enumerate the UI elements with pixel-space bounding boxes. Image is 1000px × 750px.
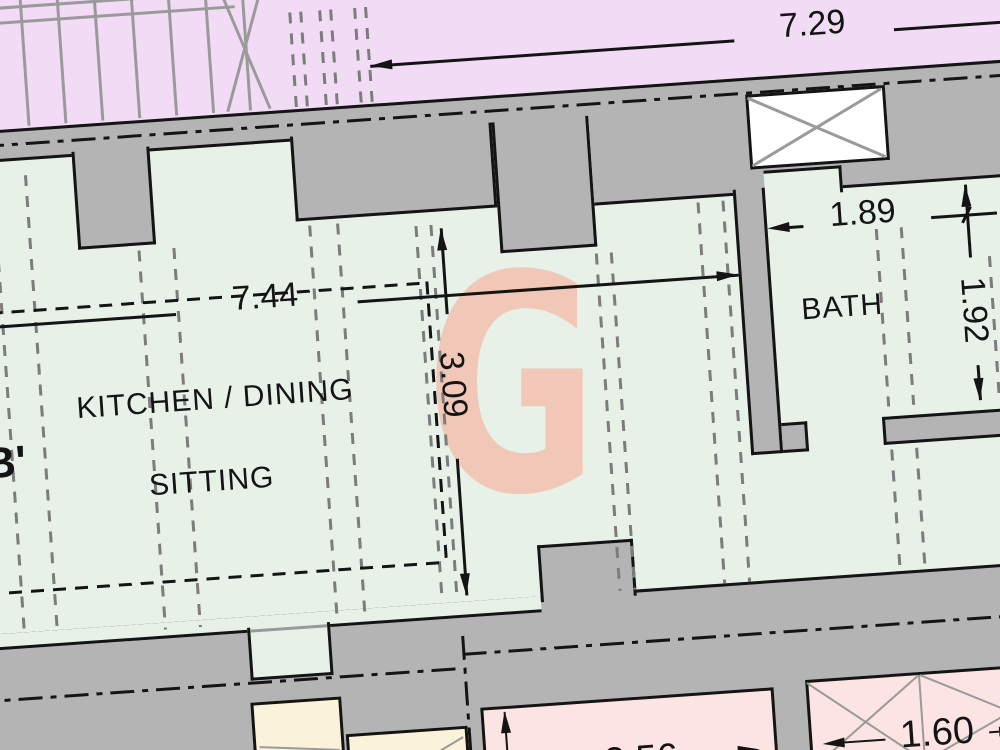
arrow-left-icon — [370, 59, 393, 71]
wall-pier — [71, 146, 156, 249]
arrow-down-icon — [973, 378, 985, 401]
arrow-up-icon — [500, 711, 512, 734]
wall-corridor-foot — [781, 421, 809, 453]
arrow-up-icon — [960, 184, 972, 207]
arrow-right-icon — [716, 270, 739, 282]
cross-diagonal — [752, 87, 882, 166]
floor-plan-canvas: 7.29 2.56 1.60 — [0, 0, 1000, 750]
bath-wall-recess — [763, 165, 843, 197]
dim-lower-right: 1.60 — [884, 709, 991, 750]
dim-bath-depth: 1.92 — [952, 263, 996, 357]
dim-kitchen-depth: 3.09 — [431, 337, 475, 431]
void-cross-box — [745, 85, 890, 170]
section-marker-label: B' — [0, 440, 28, 487]
arrow-left-icon — [767, 222, 790, 234]
arrow-down-icon — [460, 573, 472, 596]
arrow-up-icon — [436, 228, 448, 251]
stair-flight-line — [353, 736, 464, 750]
arrow-right-icon — [738, 744, 761, 750]
arrow-left-icon — [822, 737, 845, 749]
floor-plan: 7.29 2.56 1.60 — [0, 0, 1000, 750]
wall-block — [290, 123, 497, 222]
room-lower-cream — [250, 696, 348, 750]
